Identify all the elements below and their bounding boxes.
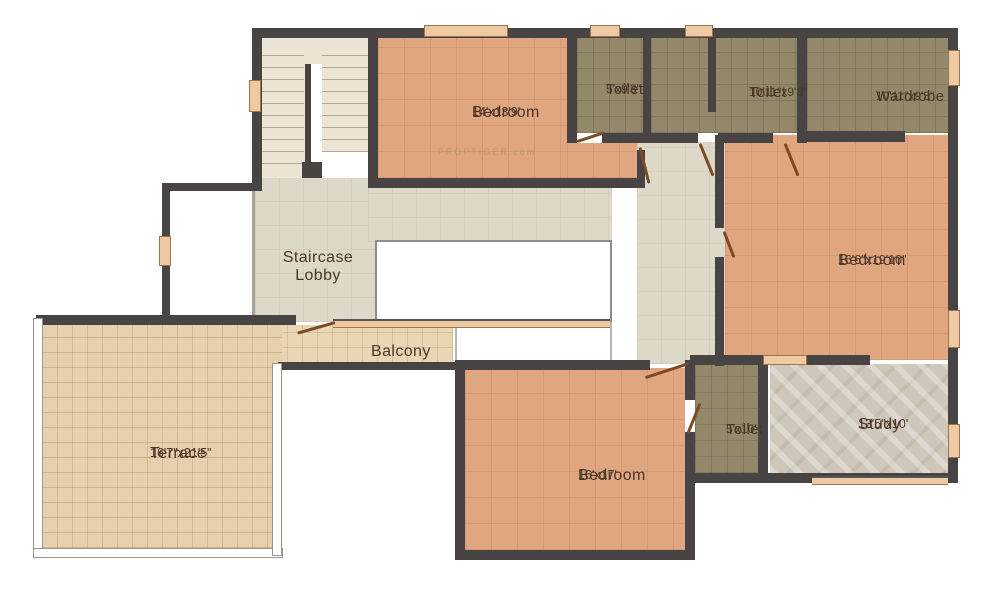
window-top-toilet2 (685, 25, 713, 37)
bedroom-top-floor-ext (567, 143, 637, 178)
wall-toilet1-toilet2-divider (643, 28, 651, 143)
wall-toilet-bottom-top (690, 355, 763, 365)
wall-bedroom-top-bottom (368, 178, 645, 188)
wall-bay-top (162, 183, 262, 191)
terrace-floor (42, 325, 282, 548)
wall-study-top (807, 355, 870, 365)
room-dims: 14'x13'9' (472, 105, 520, 119)
stair-treads-left (262, 44, 304, 174)
floor-plan: Bedroom 14'x13'9' Toilet 5'x9'3" Toilet … (0, 0, 1000, 600)
window-top-toilet1 (590, 25, 620, 37)
window-study-top (763, 355, 807, 365)
wall-bedroom-right-left-a (715, 135, 724, 228)
stair-divider-wall (305, 64, 311, 178)
wall-bedroom-top-right (567, 28, 577, 143)
window-stair-left (249, 80, 261, 112)
wall-toilet2-stub (708, 38, 716, 112)
room-dims: 5'x9'3" (606, 82, 641, 96)
void-opening (375, 240, 612, 322)
terrace-parapet-bottom (33, 548, 283, 558)
wardrobe-floor (807, 38, 948, 133)
wall-toilet2-bottom-b (718, 133, 773, 143)
room-dims: 5'x10' (726, 422, 757, 436)
lobby-floor-strip (368, 188, 612, 242)
room-dims: 16'x17' (578, 468, 617, 482)
lobby-edge-line (252, 190, 255, 318)
wall-bedroom-bottom-left (455, 360, 465, 560)
room-name: Balcony (371, 343, 431, 361)
room-dims: 16'7"x21'5" (150, 446, 212, 460)
wall-bedroom-bottom-bottom (455, 550, 695, 560)
wall-toilet-bottom-right (758, 355, 768, 483)
void-notch (455, 322, 612, 362)
wall-toilet2-bottom-a (651, 133, 698, 143)
bedroom-right-floor (725, 135, 948, 360)
toilet-bottom-floor (695, 365, 760, 473)
stair-landing (322, 152, 368, 178)
sill-study-bottom (812, 476, 948, 485)
window-top-bedroom (424, 25, 508, 37)
wall-bedroom-bottom-right-a (685, 360, 695, 400)
window-right-bedroom (948, 310, 960, 348)
window-right-wardrobe (948, 50, 960, 86)
terrace-parapet-left (33, 318, 43, 558)
wall-toilet1-bottom-a (567, 133, 576, 143)
wall-bedroom-right-left-b (715, 257, 724, 366)
wall-wardrobe-bottom (800, 131, 905, 142)
wall-outer-right (948, 28, 958, 483)
room-dims: 10'11"x9'3" (749, 85, 807, 99)
railing-balcony-void (333, 319, 610, 328)
room-dims: 16'6"x19'10" (838, 253, 907, 267)
room-dims: 10'11"x9'3" (876, 89, 934, 103)
window-right-study (948, 424, 960, 458)
wall-balcony-bottom (278, 362, 465, 370)
room-name: Staircase Lobby (263, 249, 373, 285)
wall-bedroom-bottom-right-b (685, 432, 695, 560)
stair-void (311, 64, 322, 178)
wall-bedroom-bottom-top (455, 360, 650, 370)
window-bay-left (159, 236, 171, 266)
room-dims: 13'5"x10' (858, 417, 908, 431)
watermark: PROPTIGER.com (438, 147, 537, 157)
stair-treads-right (322, 44, 368, 152)
bedroom-bottom-floor (465, 368, 685, 550)
wall-bedroom-top-left (368, 28, 378, 188)
wall-terrace-top (36, 315, 296, 325)
terrace-parapet-right (272, 363, 282, 556)
